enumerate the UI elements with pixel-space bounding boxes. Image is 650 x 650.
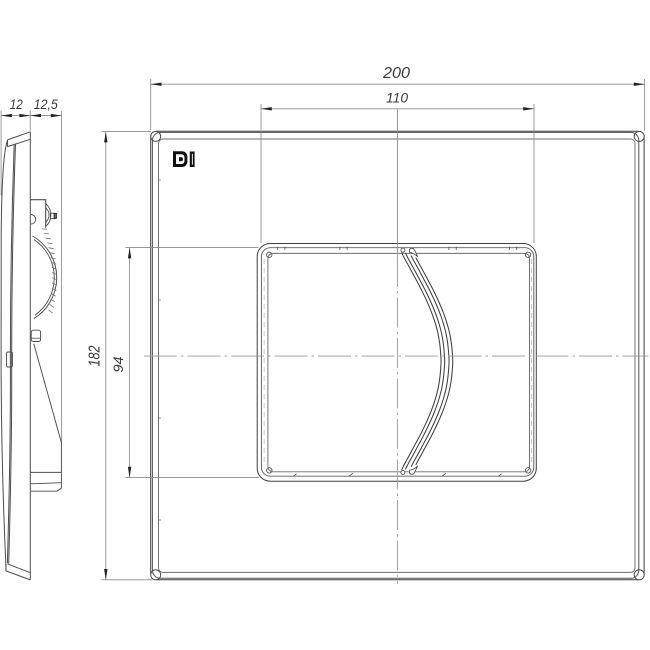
svg-text:94: 94 <box>111 357 126 373</box>
svg-text:12: 12 <box>10 97 23 112</box>
svg-text:12,5: 12,5 <box>34 97 58 112</box>
svg-text:110: 110 <box>386 91 408 106</box>
svg-text:200: 200 <box>382 65 410 82</box>
svg-text:182: 182 <box>87 345 104 366</box>
